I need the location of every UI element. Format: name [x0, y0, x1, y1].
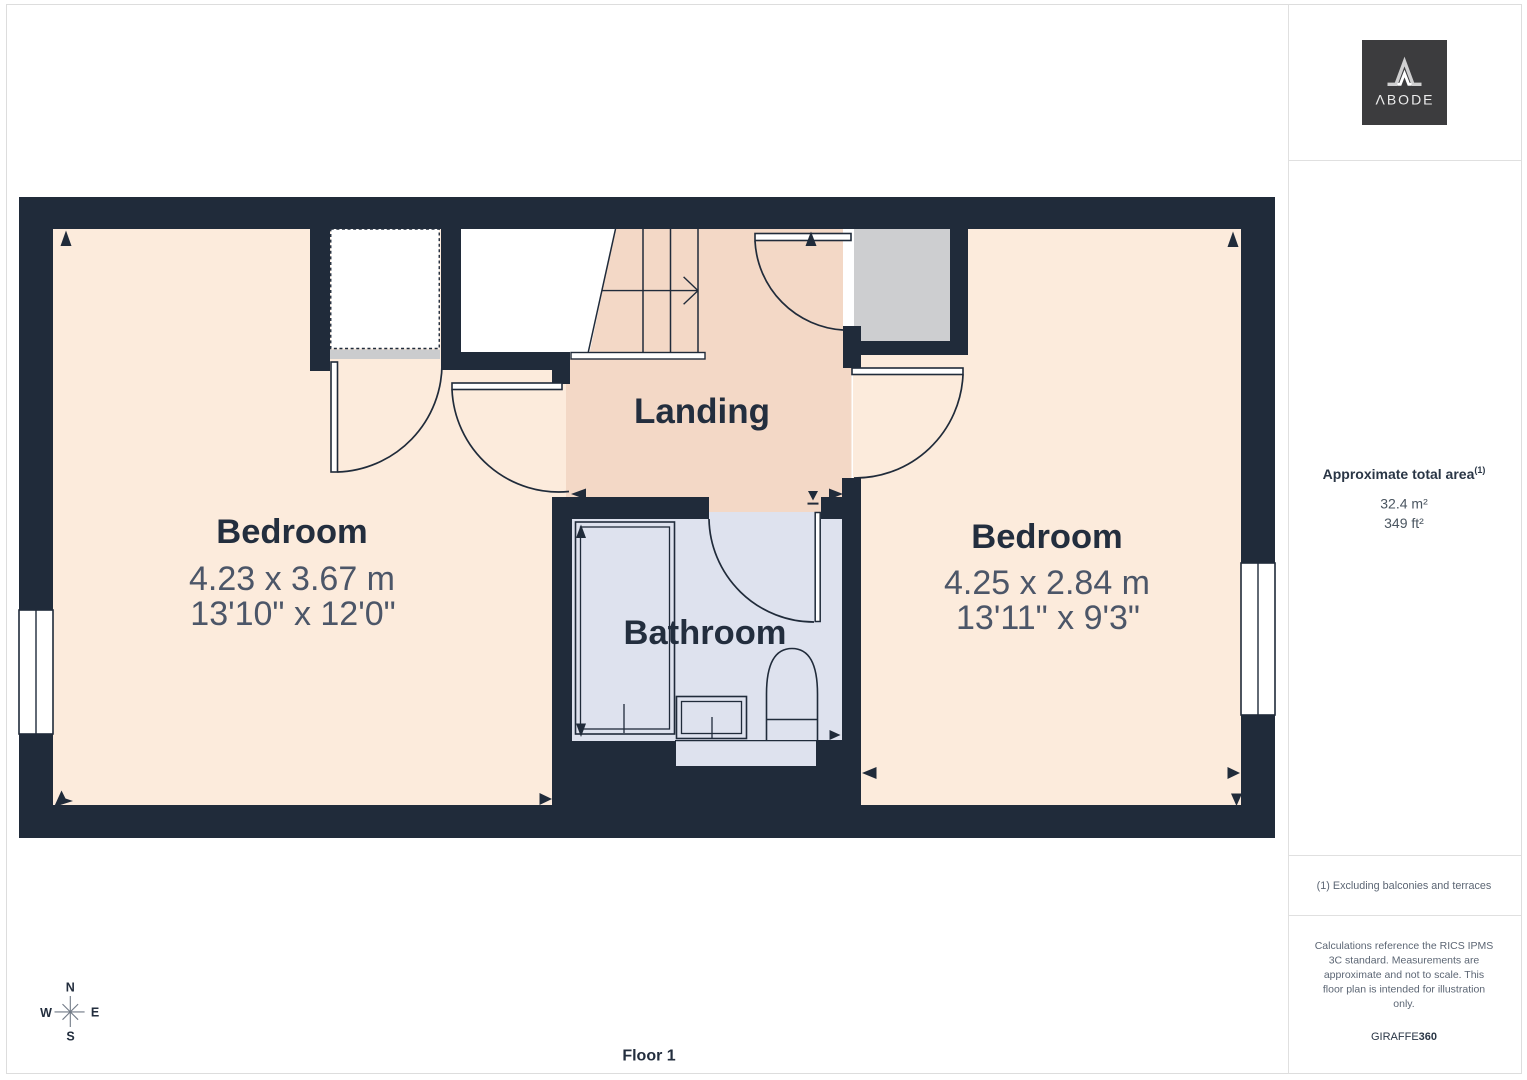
svg-text:349 ft²: 349 ft²	[1384, 515, 1424, 531]
svg-text:3C standard. Measurements are: 3C standard. Measurements are	[1329, 955, 1480, 967]
svg-text:S: S	[66, 1030, 74, 1044]
svg-text:GIRAFFE360: GIRAFFE360	[1371, 1031, 1437, 1043]
svg-text:4.25 x 2.84 m: 4.25 x 2.84 m	[944, 564, 1150, 602]
svg-text:Bedroom: Bedroom	[971, 518, 1122, 556]
svg-text:32.4 m²: 32.4 m²	[1380, 496, 1428, 512]
svg-text:approximate and not to scale.: approximate and not to scale. This	[1324, 969, 1484, 981]
svg-text:N: N	[66, 981, 75, 995]
svg-text:only.: only.	[1393, 998, 1414, 1010]
svg-text:Bathroom: Bathroom	[624, 614, 787, 652]
svg-text:floor plan is intended for ill: floor plan is intended for illustration	[1323, 984, 1485, 996]
svg-text:13'11" x 9'3": 13'11" x 9'3"	[956, 599, 1140, 637]
svg-text:Bedroom: Bedroom	[216, 513, 367, 551]
svg-text:Floor 1: Floor 1	[622, 1048, 675, 1065]
svg-text:Landing: Landing	[634, 392, 770, 431]
svg-text:Approximate total area(1): Approximate total area(1)	[1323, 465, 1486, 482]
svg-text:E: E	[91, 1006, 99, 1020]
svg-text:W: W	[40, 1006, 52, 1020]
svg-text:ΛBODE: ΛBODE	[1375, 92, 1434, 108]
svg-text:Calculations reference the RIC: Calculations reference the RICS IPMS	[1315, 940, 1494, 952]
svg-text:(1) Excluding balconies and te: (1) Excluding balconies and terraces	[1317, 880, 1492, 892]
svg-text:4.23 x 3.67 m: 4.23 x 3.67 m	[189, 560, 395, 598]
svg-text:13'10" x 12'0": 13'10" x 12'0"	[190, 595, 395, 633]
